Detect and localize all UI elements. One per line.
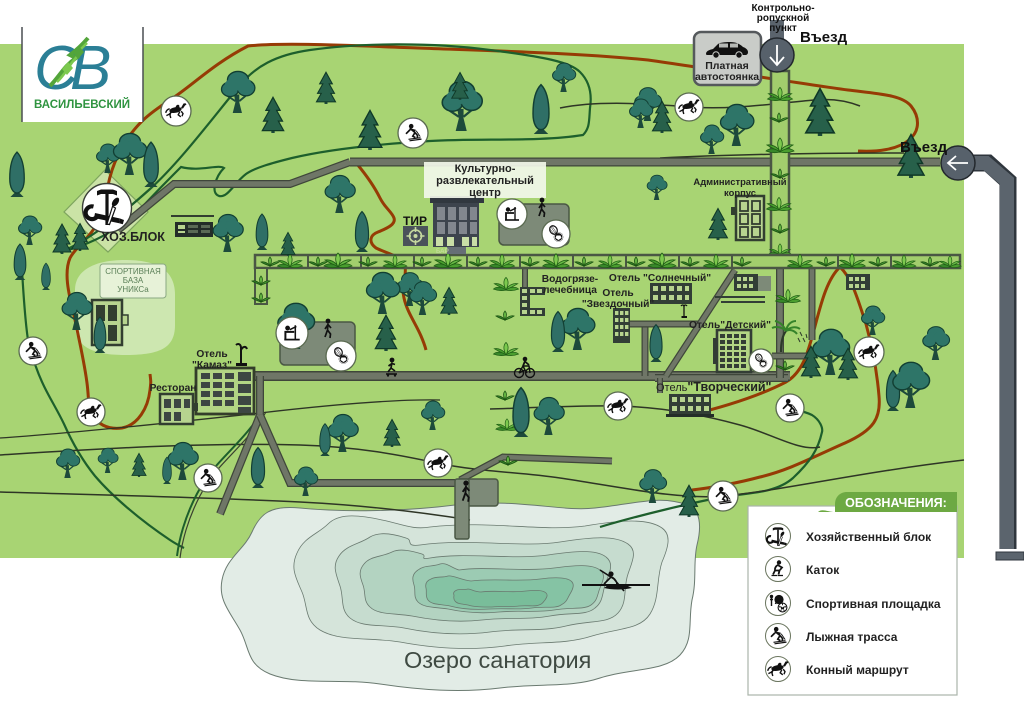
svg-text:Ресторан: Ресторан (150, 383, 197, 394)
svg-text:Водогрязе-: Водогрязе- (542, 274, 598, 285)
svg-text:корпус: корпус (724, 187, 756, 198)
svg-text:Каток: Каток (806, 563, 840, 577)
svg-text:Культурно-: Культурно- (455, 163, 516, 175)
svg-text:Отель"Детский": Отель"Детский" (689, 320, 771, 331)
svg-text:Въезд: Въезд (900, 139, 948, 156)
svg-text:БАР: БАР (436, 248, 449, 255)
svg-text:УНИКСа: УНИКСа (117, 285, 149, 294)
svg-text:развлекательный: развлекательный (436, 175, 534, 187)
svg-text:центр: центр (469, 187, 501, 199)
svg-text:ОБОЗНАЧЕНИЯ:: ОБОЗНАЧЕНИЯ: (845, 496, 947, 510)
svg-text:Административный: Административный (693, 176, 786, 187)
svg-text:Въезд: Въезд (800, 29, 848, 46)
svg-text:Отель"Творческий": Отель"Творческий" (656, 380, 772, 394)
svg-text:ТИР: ТИР (403, 214, 427, 228)
svg-text:ХОЗ.БЛОК: ХОЗ.БЛОК (101, 230, 165, 244)
svg-text:пункт: пункт (769, 23, 797, 34)
svg-text:Озеро санатория: Озеро санатория (404, 647, 591, 673)
svg-text:"Звездочный": "Звездочный" (582, 299, 655, 310)
svg-text:B: B (70, 34, 111, 103)
svg-text:Отель "Солнечный": Отель "Солнечный" (609, 273, 711, 284)
svg-text:Лыжная трасса: Лыжная трасса (806, 630, 898, 644)
svg-text:"Камаз": "Камаз" (192, 360, 232, 371)
svg-text:Отель: Отель (196, 349, 227, 360)
svg-text:СПОРТИВНАЯ: СПОРТИВНАЯ (105, 267, 161, 276)
svg-text:Отель: Отель (602, 288, 633, 299)
svg-text:Хозяйственный блок: Хозяйственный блок (806, 530, 932, 544)
svg-text:Конный маршрут: Конный маршрут (806, 663, 909, 677)
svg-text:ВАСИЛЬЕВСКИЙ: ВАСИЛЬЕВСКИЙ (34, 98, 130, 111)
svg-text:Спортивная площадка: Спортивная площадка (806, 597, 941, 611)
svg-text:автостоянка: автостоянка (695, 71, 759, 83)
svg-text:БАЗА: БАЗА (123, 276, 144, 285)
svg-text:лечебница: лечебница (543, 284, 597, 296)
